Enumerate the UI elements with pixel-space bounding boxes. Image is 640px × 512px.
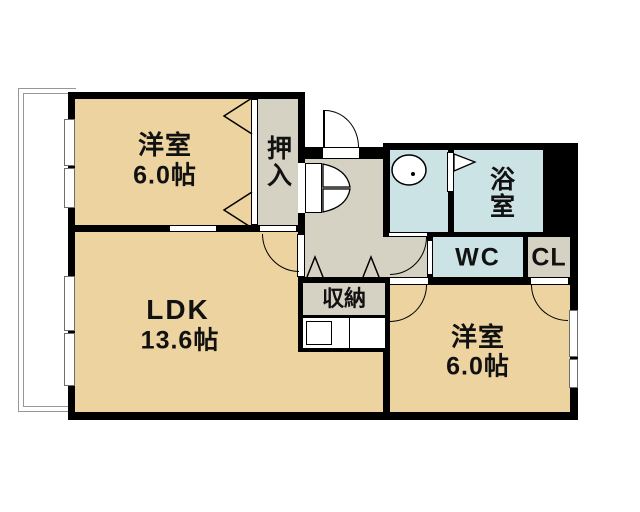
- entrance-door-swing-arc: [325, 110, 359, 147]
- bedroom2-window-lower: [569, 359, 578, 388]
- bedroom1-window-lower: [64, 168, 75, 208]
- bath-folding-door: [447, 152, 454, 192]
- bedroom1-window-upper: [64, 119, 75, 166]
- wall-wc-closet-divider: [523, 237, 528, 277]
- ldk-name-label: LDK: [146, 296, 210, 324]
- washroom-floor: [390, 150, 448, 232]
- entrance-threshold: [322, 147, 360, 159]
- wall-oshiire-right-lower: [298, 213, 305, 234]
- hall-bifold-door-panel: [305, 163, 322, 213]
- wall-bath-right-mass: [543, 150, 578, 232]
- wc-label: WC: [455, 246, 501, 271]
- oshiire-sliding-door: [251, 99, 258, 225]
- bath-label: 浴室: [488, 166, 513, 220]
- ldk-window-lower: [64, 333, 75, 386]
- ldk-window-upper: [64, 276, 75, 331]
- closet-threshold: [531, 278, 568, 284]
- wall-washroom-left: [383, 150, 390, 237]
- bedroom2-doorway: [390, 278, 428, 284]
- wall-top-right: [383, 143, 578, 150]
- floor-plan: 洋室 6.0帖 押入 浴室 WC CL LDK 13.6帖 収納 洋室 6.0帖: [0, 0, 640, 512]
- bedroom1-name-label: 洋室: [138, 132, 192, 158]
- wall-bottom: [68, 412, 578, 420]
- wall-opening-oshiire-bottom: [260, 226, 296, 231]
- bedroom2-window-upper: [569, 310, 578, 357]
- storage-label: 収納: [322, 288, 366, 310]
- ldk-size-label: 13.6帖: [141, 329, 220, 354]
- bedroom2-name-label: 洋室: [451, 324, 505, 350]
- kitchen-sink: [306, 321, 332, 345]
- closet-label: CL: [531, 246, 566, 271]
- oshiire-label: 押入: [265, 135, 290, 189]
- wall-opening-ldk-bedroom1: [170, 226, 216, 231]
- bedroom1-size-label: 6.0帖: [133, 164, 197, 189]
- bifold-doorway-gap: [298, 163, 305, 213]
- wc-door-leaf: [427, 240, 433, 275]
- wall-top: [68, 92, 305, 99]
- bedroom2-size-label: 6.0帖: [446, 355, 510, 380]
- wall-entry-left: [302, 147, 323, 159]
- washroom-doorway: [389, 233, 427, 236]
- kitchen-counter-divider: [349, 318, 350, 348]
